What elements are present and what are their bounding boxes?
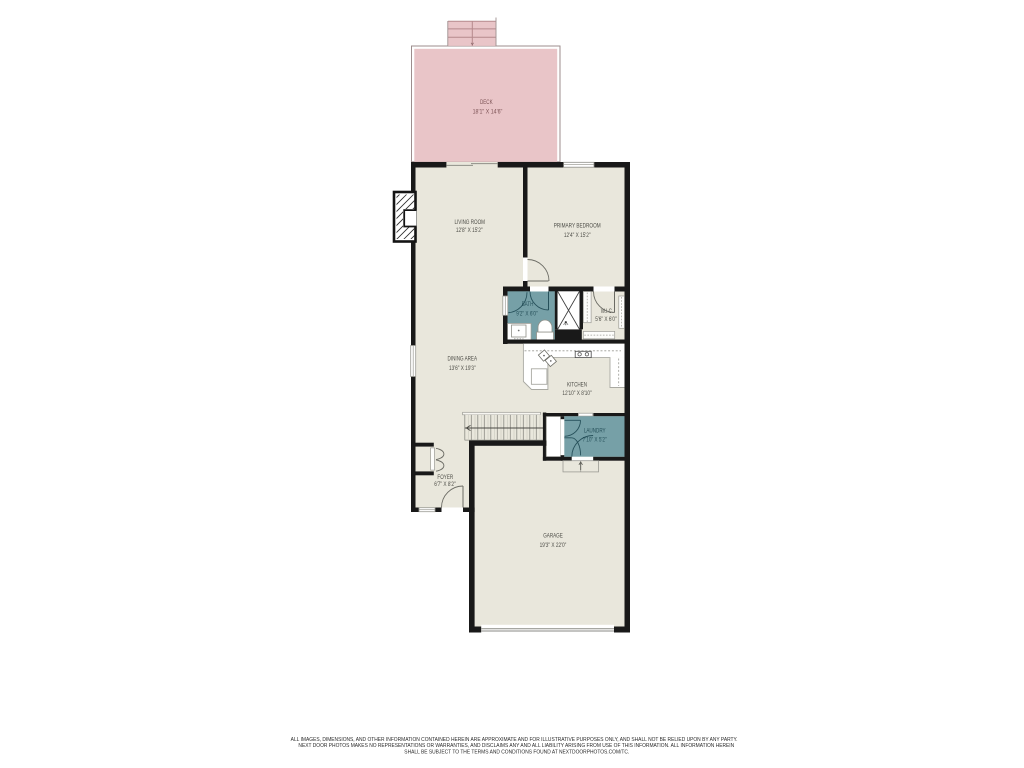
svg-text:9'2" X 6'0": 9'2" X 6'0": [516, 311, 538, 318]
svg-text:12'8" X 15'2": 12'8" X 15'2": [456, 227, 483, 234]
svg-text:DECK: DECK: [480, 100, 493, 107]
svg-text:DINING AREA: DINING AREA: [448, 356, 478, 363]
svg-text:GARAGE: GARAGE: [543, 533, 563, 540]
svg-text:13'6" X 19'3": 13'6" X 19'3": [449, 365, 476, 372]
svg-text:12'4" X 15'2": 12'4" X 15'2": [564, 233, 591, 240]
svg-text:LAUNDRY: LAUNDRY: [584, 428, 606, 435]
svg-text:18'1" X 14'6": 18'1" X 14'6": [473, 109, 503, 115]
svg-text:6'7" X 8'2": 6'7" X 8'2": [434, 482, 456, 489]
svg-text:7'10" X 5'2": 7'10" X 5'2": [583, 437, 607, 444]
svg-text:19'3" X 22'0": 19'3" X 22'0": [540, 543, 567, 550]
svg-text:5'6" X 6'0": 5'6" X 6'0": [595, 317, 617, 324]
svg-text:FOYER: FOYER: [437, 475, 453, 482]
svg-text:LIVING ROOM: LIVING ROOM: [454, 219, 485, 226]
svg-text:12'10" X 8'10": 12'10" X 8'10": [562, 390, 591, 397]
svg-text:SHALL BE SUBJECT TO THE TERMS: SHALL BE SUBJECT TO THE TERMS AND CONDIT…: [404, 749, 629, 755]
svg-text:PRIMARY BEDROOM: PRIMARY BEDROOM: [554, 223, 601, 230]
svg-text:KITCHEN: KITCHEN: [567, 382, 587, 389]
